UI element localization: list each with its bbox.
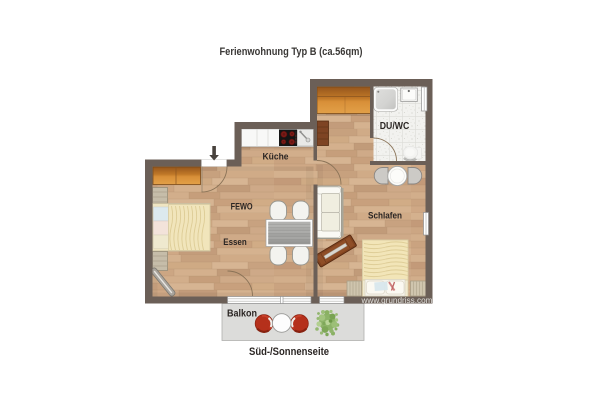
- svg-text:Schlafen: Schlafen: [368, 211, 402, 222]
- svg-text:Küche: Küche: [263, 152, 289, 163]
- svg-text:Ferienwohnung Typ B (ca.56qm): Ferienwohnung Typ B (ca.56qm): [220, 46, 363, 58]
- svg-text:Süd-/Sonnenseite: Süd-/Sonnenseite: [249, 346, 329, 358]
- svg-text:Essen: Essen: [223, 237, 247, 248]
- svg-text:Balkon: Balkon: [227, 309, 257, 320]
- svg-text:DU/WC: DU/WC: [380, 121, 410, 132]
- svg-text:www.grundriss.com: www.grundriss.com: [360, 296, 432, 305]
- svg-text:FEWO: FEWO: [231, 202, 253, 213]
